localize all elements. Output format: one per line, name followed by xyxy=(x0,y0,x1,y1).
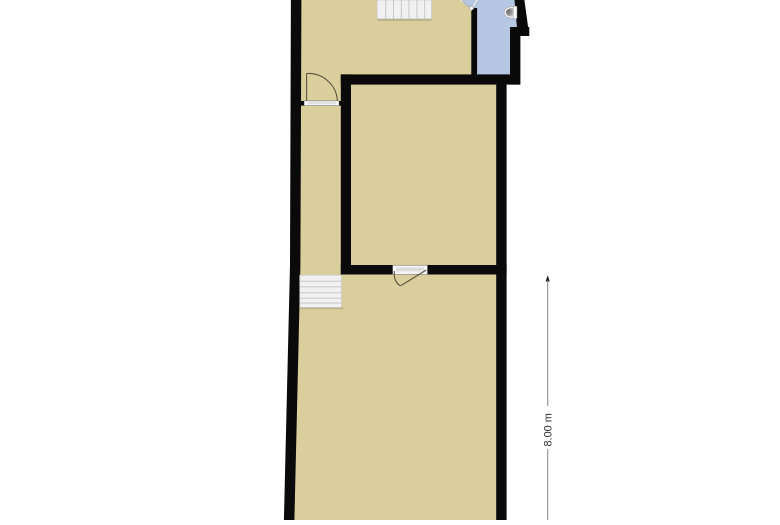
svg-text:8.00 m: 8.00 m xyxy=(542,413,554,446)
